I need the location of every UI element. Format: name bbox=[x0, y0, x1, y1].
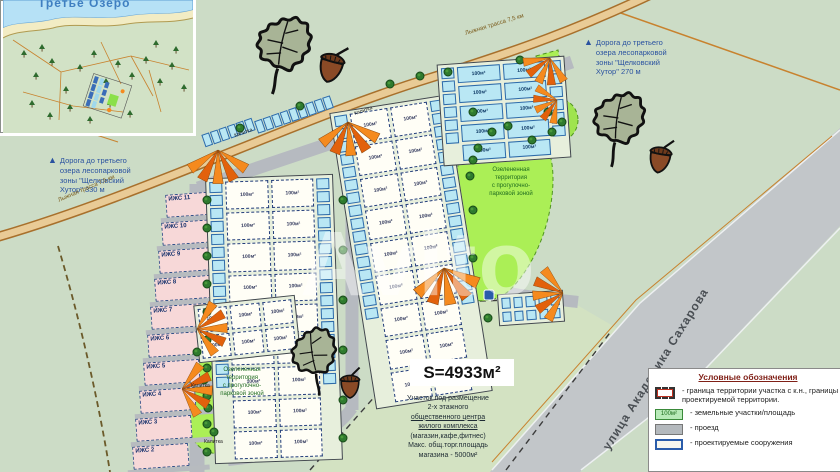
parking-cell bbox=[526, 296, 536, 307]
parking-cell bbox=[318, 243, 331, 254]
parking-cell bbox=[513, 297, 523, 308]
plot-boundary: ИЖС 8 bbox=[154, 275, 211, 302]
plot-label: ИЖС 2 bbox=[135, 445, 187, 455]
legend-item: - проезд bbox=[655, 423, 840, 435]
text-line: Хутор" 270 м bbox=[596, 67, 667, 77]
plot-boundary: ИЖС 9 bbox=[158, 247, 215, 274]
parking-cell bbox=[320, 295, 333, 306]
legend-item: - проектируемые сооружения bbox=[655, 438, 840, 450]
parking-cell bbox=[336, 127, 351, 140]
text-line: зоны "Щелковский bbox=[596, 58, 667, 68]
parking-cell bbox=[211, 234, 224, 245]
parking-cell bbox=[550, 99, 564, 111]
parking-cell bbox=[210, 195, 223, 206]
parking-cell bbox=[549, 73, 563, 85]
parking-cell bbox=[317, 204, 330, 215]
public-center-note: Участок под размещение2-х этажногообщест… bbox=[366, 394, 530, 460]
parking-cell bbox=[538, 295, 548, 306]
plot-cell: 100м² bbox=[365, 205, 407, 240]
plot-cell: 100м² bbox=[400, 166, 442, 201]
parking-cell bbox=[551, 307, 561, 318]
parking-cell: 100м² bbox=[502, 61, 546, 80]
legend-item-label: - проезд bbox=[690, 423, 840, 432]
parking-cell: 100м² bbox=[461, 122, 505, 141]
land-plot: ИЖС 2 bbox=[132, 441, 214, 472]
text-line: с прогулочно- bbox=[202, 382, 282, 390]
parking-cell bbox=[548, 60, 562, 72]
plot-label: ИЖС 4 bbox=[142, 389, 194, 399]
parking-cell bbox=[454, 253, 469, 266]
parking-cell bbox=[320, 282, 333, 293]
parking-cell bbox=[446, 202, 461, 215]
parking-cell: 100м² bbox=[504, 80, 548, 99]
parking-sign-icon bbox=[484, 290, 494, 300]
parking-cell bbox=[460, 292, 475, 305]
parking-cell bbox=[450, 228, 465, 241]
parking-cell bbox=[445, 132, 459, 144]
parking-cell bbox=[323, 373, 336, 384]
plot-cell: 100м² bbox=[355, 140, 397, 175]
parking-cell bbox=[322, 360, 335, 371]
plot-cell: 100м² bbox=[415, 264, 457, 299]
plot-cell: 100м² bbox=[233, 399, 276, 429]
green-zone-note: Озелененнаятерриторияс прогулочно-парков… bbox=[202, 366, 282, 398]
plot-cell: 100м² bbox=[200, 332, 232, 358]
parking-cell bbox=[362, 294, 377, 307]
text-line: 2-х этажного bbox=[366, 403, 530, 412]
text-line: озера лесопарковой bbox=[60, 166, 131, 176]
text-line: общественного центра bbox=[366, 413, 530, 422]
parking-cell bbox=[346, 191, 361, 204]
parking-cell bbox=[319, 269, 332, 280]
parking-cell bbox=[334, 114, 349, 127]
gate-label: Калитка bbox=[204, 439, 223, 445]
parking-cell bbox=[456, 266, 471, 279]
parking-cell bbox=[360, 281, 375, 294]
parking-cell: 100м² bbox=[508, 138, 552, 157]
parking-cell bbox=[213, 286, 226, 297]
parking-cell bbox=[209, 182, 222, 193]
annotation-road-top: ▲ Дорога до третьегоозера лесопарковойзо… bbox=[584, 38, 694, 77]
parking-cell bbox=[212, 260, 225, 271]
plot-cell: 100м² bbox=[390, 102, 432, 137]
parking-cell bbox=[342, 166, 357, 179]
text-line: Озелененная bbox=[472, 166, 550, 174]
parking-cell bbox=[318, 230, 331, 241]
boundary-swatch bbox=[655, 387, 675, 399]
plot-swatch: 100м² bbox=[655, 409, 683, 420]
parking-cell bbox=[317, 191, 330, 202]
parking-cell bbox=[444, 119, 458, 131]
parking-cell bbox=[211, 221, 224, 232]
plot-cell: 100м² bbox=[277, 366, 320, 396]
plot-cell: 100м² bbox=[271, 179, 314, 209]
annotation-road-left: ▲ Дорога до третьегоозера лесопарковойзо… bbox=[48, 156, 158, 195]
parking-cell bbox=[211, 247, 224, 258]
plot-label: ИЖС 6 bbox=[150, 333, 202, 343]
plot-cell: 100м² bbox=[380, 302, 422, 337]
gate-label: Калитка bbox=[191, 383, 210, 389]
parking-cell: 100м² bbox=[460, 103, 504, 122]
plot-boundary: ИЖС 4 bbox=[139, 387, 196, 414]
housing-block: 100м²100м²100м²100м²100м²100м² bbox=[193, 295, 301, 363]
plot-label: ИЖС 3 bbox=[139, 417, 191, 427]
plot-cell: 100м² bbox=[405, 199, 447, 234]
site-plan: Третье Озеро ИЖС 11ИЖС 10ИЖС 9ИЖС 8ИЖС 7… bbox=[0, 0, 840, 472]
text-line: жилого комплекса bbox=[366, 422, 530, 431]
parking-cell bbox=[210, 208, 223, 219]
plot-boundary: ИЖС 5 bbox=[143, 359, 200, 386]
housing-block bbox=[497, 290, 565, 327]
parking-cell bbox=[354, 243, 369, 256]
parking-cell bbox=[340, 153, 355, 166]
parking-cell bbox=[350, 217, 365, 230]
plot-cell: 100м² bbox=[198, 306, 230, 332]
parking-cell bbox=[321, 321, 334, 332]
lake-label: Третье Озеро bbox=[38, 0, 130, 10]
plot-cell: 100м² bbox=[225, 180, 268, 210]
parking-cell: 100м² bbox=[462, 142, 506, 161]
parking-cell bbox=[441, 67, 455, 79]
parking-cell bbox=[212, 273, 225, 284]
text-line: Макс. общ.торг.площадь bbox=[366, 441, 530, 450]
green-zone-note: Озелененнаятерриторияс прогулочно-парков… bbox=[472, 166, 550, 198]
parking-cell bbox=[338, 140, 353, 153]
parking-cell bbox=[539, 308, 549, 319]
plot-cell: 100м² bbox=[233, 329, 265, 355]
parking-cell bbox=[444, 106, 458, 118]
text-line: парковой зоной bbox=[472, 190, 550, 198]
parking-cell bbox=[344, 179, 359, 192]
location-inset-map: Третье Озеро bbox=[0, 0, 196, 136]
parking-cell bbox=[364, 307, 379, 320]
parking-cell bbox=[502, 311, 512, 322]
plot-cell: 100м² bbox=[279, 428, 322, 458]
parking-cell bbox=[552, 125, 566, 137]
legend-items: - граница территории участка с к.н., гра… bbox=[655, 386, 840, 450]
plot-cell: 100м² bbox=[234, 430, 277, 460]
parking-cell bbox=[551, 112, 565, 124]
parking-cell bbox=[501, 297, 511, 308]
parking-cell bbox=[352, 230, 367, 243]
parking-cell bbox=[448, 215, 463, 228]
plot-grid: 100м²100м²100м²100м²100м²100м²100м²100м²… bbox=[457, 61, 551, 161]
plot-cell: 100м² bbox=[395, 134, 437, 169]
legend-item-label: - проектируемые сооружения bbox=[690, 438, 840, 447]
parking-cell bbox=[458, 279, 473, 292]
legend-item: - граница территории участка с к.н., гра… bbox=[655, 386, 840, 405]
plot-label: ИЖС 5 bbox=[146, 361, 198, 371]
parking-cell bbox=[322, 347, 335, 358]
legend-item: 100м²- земельные участки/площадь bbox=[655, 408, 840, 420]
plot-cell: 100м² bbox=[226, 211, 269, 241]
parking-cell: 100м² bbox=[505, 100, 549, 119]
parking-strip bbox=[548, 60, 568, 155]
parking-cell bbox=[442, 176, 457, 189]
legend-item-label: - граница территории участка с к.н., гра… bbox=[682, 386, 840, 405]
text-line: парковой зоной bbox=[202, 390, 282, 398]
text-line: с прогулочно- bbox=[472, 182, 550, 190]
parking-cell bbox=[356, 256, 371, 269]
parking-cell bbox=[322, 334, 335, 345]
plot-cell: 100м² bbox=[227, 243, 270, 273]
parking-cell: 100м² bbox=[506, 119, 550, 138]
plot-cell: 100м² bbox=[278, 397, 321, 427]
text-line: Дорога до третьего bbox=[60, 156, 131, 166]
parking-cell bbox=[444, 189, 459, 202]
legend-title: Условные обозначения bbox=[655, 372, 840, 382]
text-line: (магазин,кафе,фитнес) bbox=[366, 432, 530, 441]
north-arrow-icon: ▲ bbox=[584, 38, 593, 77]
build-swatch bbox=[655, 439, 683, 450]
legend: Условные обозначения - граница территори… bbox=[648, 368, 840, 472]
legend-item-label: - земельные участки/площадь bbox=[690, 408, 840, 417]
parking-cell bbox=[527, 309, 537, 320]
parking-cell bbox=[317, 217, 330, 228]
parking-cell: 100м² bbox=[458, 84, 502, 103]
plot-grid: 100м²100м²100м²100м²100м²100м² bbox=[198, 299, 297, 359]
plot-cell: 100м² bbox=[420, 296, 462, 331]
text-line: Озелененная bbox=[202, 366, 282, 374]
plot-cell: 100м² bbox=[262, 299, 294, 325]
text-line: Дорога до третьего bbox=[596, 38, 667, 48]
parking-cell bbox=[550, 294, 560, 305]
plot-cell: 100м² bbox=[370, 238, 412, 273]
plot-cell: 100м² bbox=[272, 210, 315, 240]
text-line: магазина - 5000м² bbox=[366, 451, 530, 460]
parking-cell bbox=[358, 268, 373, 281]
plot-cell: 100м² bbox=[360, 173, 402, 208]
parking-cell bbox=[442, 80, 456, 92]
parking-cell bbox=[319, 256, 332, 267]
housing-block: 100м²100м²100м²100м²100м²100м²100м²100м²… bbox=[437, 56, 572, 167]
plot-cell: 100м² bbox=[375, 270, 417, 305]
plot-boundary: ИЖС 3 bbox=[135, 415, 192, 442]
area-value: S=4933м² bbox=[410, 359, 514, 386]
plot-cell: 100м² bbox=[273, 241, 316, 271]
north-arrow-icon: ▲ bbox=[48, 156, 57, 195]
annotation-text: Дорога до третьегоозера лесопарковойзоны… bbox=[60, 156, 131, 195]
plot-cell: 100м² bbox=[410, 231, 452, 266]
plot-boundary: ИЖС 2 bbox=[132, 443, 189, 470]
road-swatch bbox=[655, 424, 683, 435]
inset-map-canvas bbox=[3, 0, 193, 133]
parking-cell bbox=[452, 240, 467, 253]
parking-cell bbox=[549, 86, 563, 98]
parking-cell bbox=[316, 178, 329, 189]
plot-cell: 100м² bbox=[265, 326, 297, 352]
text-line: озера лесопарковой bbox=[596, 48, 667, 58]
plot-label: ИЖС 9 bbox=[161, 249, 213, 259]
plot-cell: 100м² bbox=[230, 303, 262, 329]
parking-cell bbox=[321, 308, 334, 319]
plot-grid bbox=[501, 294, 561, 322]
plot-label: ИЖС 8 bbox=[157, 277, 209, 287]
text-line: Участок под размещение bbox=[366, 394, 530, 403]
text-line: территория bbox=[202, 374, 282, 382]
parking-cell: 100м² bbox=[457, 64, 501, 83]
annotation-text: Дорога до третьегоозера лесопарковойзоны… bbox=[596, 38, 667, 77]
parking-cell bbox=[443, 93, 457, 105]
parking-cell bbox=[514, 310, 524, 321]
text-line: территория bbox=[472, 174, 550, 182]
parking-cell bbox=[348, 204, 363, 217]
